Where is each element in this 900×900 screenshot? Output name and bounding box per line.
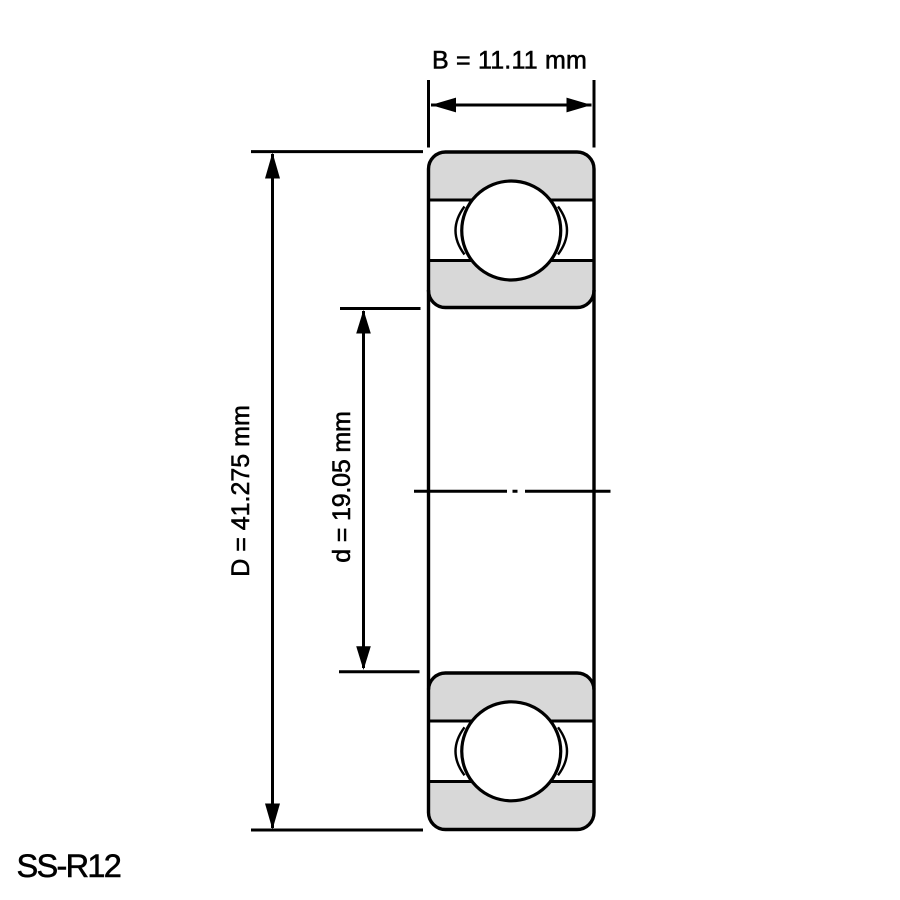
svg-text:B = 11.11 mm: B = 11.11 mm [432, 47, 587, 75]
svg-text:d = 19.05 mm: d = 19.05 mm [328, 411, 356, 562]
svg-text:SS-R12: SS-R12 [17, 848, 121, 884]
svg-text:D = 41.275 mm: D = 41.275 mm [227, 405, 255, 577]
